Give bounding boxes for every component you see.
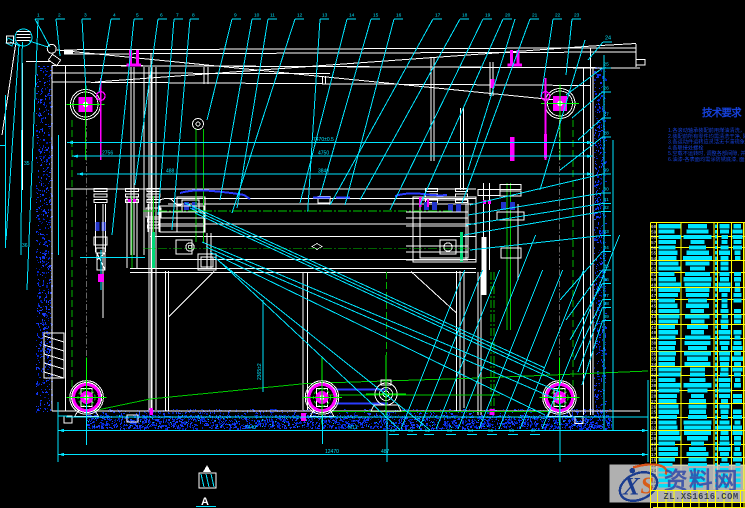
svg-text:50: 50: [651, 278, 657, 283]
svg-text:22: 22: [555, 13, 561, 19]
svg-text:31: 31: [651, 379, 657, 384]
svg-text:27: 27: [651, 400, 657, 405]
svg-text:9: 9: [234, 13, 237, 19]
svg-text:S: S: [641, 474, 654, 500]
svg-text:21: 21: [651, 432, 657, 437]
svg-text:58: 58: [651, 236, 657, 241]
svg-text:22: 22: [651, 427, 657, 432]
svg-text:49: 49: [651, 283, 657, 288]
svg-text:4750: 4750: [318, 151, 329, 157]
svg-text:54: 54: [651, 257, 657, 262]
svg-text:45: 45: [651, 305, 657, 310]
svg-text:5.空载不运转时, 调整各部间隙, 并涂防锈油漆上: 5.空载不运转时, 调整各部间隙, 并涂防锈油漆上: [668, 149, 745, 157]
svg-text:5: 5: [136, 13, 139, 19]
svg-text:7470±0.5: 7470±0.5: [313, 137, 334, 143]
svg-text:20: 20: [505, 13, 511, 19]
svg-text:24: 24: [651, 416, 657, 421]
svg-text:36: 36: [651, 352, 657, 357]
svg-text:51: 51: [651, 273, 657, 278]
svg-text:35: 35: [651, 358, 657, 363]
svg-text:4.各联接处螺栓: 4.各联接处螺栓: [668, 143, 704, 151]
svg-text:13: 13: [322, 13, 328, 19]
svg-text:487: 487: [381, 449, 390, 455]
svg-text:2.装配前所有零件均需清洗干净, 除锈: 2.装配前所有零件均需清洗干净, 除锈: [668, 132, 745, 140]
svg-text:1.各滚动轴承装配前用煤油清洗，用毛刷洗净 装轴承孔 同时涂: 1.各滚动轴承装配前用煤油清洗，用毛刷洗净 装轴承孔 同时涂上润: [668, 126, 745, 134]
svg-text:18: 18: [462, 13, 468, 19]
svg-text:2756: 2756: [102, 151, 113, 157]
svg-text:21: 21: [532, 13, 538, 19]
svg-text:46: 46: [651, 299, 657, 304]
svg-text:7: 7: [176, 13, 179, 19]
svg-text:X: X: [622, 474, 641, 501]
svg-text:16: 16: [651, 458, 657, 463]
svg-text:37: 37: [651, 347, 657, 352]
svg-text:技术要求: 技术要求: [702, 106, 742, 119]
svg-text:ZL.XS1616.COM: ZL.XS1616.COM: [664, 492, 739, 502]
svg-text:2365±2: 2365±2: [257, 363, 263, 380]
svg-text:4: 4: [113, 13, 116, 19]
svg-text:33: 33: [651, 368, 657, 373]
svg-text:56: 56: [651, 246, 657, 251]
svg-text:28: 28: [651, 395, 657, 400]
svg-text:42: 42: [651, 321, 657, 326]
svg-text:35: 35: [24, 161, 30, 167]
svg-text:16: 16: [396, 13, 402, 19]
svg-text:10: 10: [254, 13, 260, 19]
svg-text:1: 1: [37, 13, 40, 19]
svg-text:23: 23: [651, 421, 657, 426]
svg-text:47: 47: [651, 294, 657, 299]
svg-text:23: 23: [574, 13, 580, 19]
svg-text:3: 3: [84, 13, 87, 19]
svg-text:19: 19: [651, 442, 657, 447]
svg-text:40: 40: [651, 331, 657, 336]
svg-text:资料网: 资料网: [664, 468, 739, 494]
svg-text:8: 8: [192, 13, 195, 19]
svg-text:3.各运动件运转应灵活无卡滞现象: 3.各运动件运转应灵活无卡滞现象: [668, 138, 745, 146]
svg-text:6: 6: [160, 13, 163, 19]
svg-text:24: 24: [605, 36, 611, 42]
svg-text:18: 18: [651, 448, 657, 453]
svg-text:488: 488: [166, 169, 175, 175]
svg-text:57: 57: [651, 241, 657, 246]
svg-text:48: 48: [651, 289, 657, 294]
svg-text:44: 44: [651, 310, 657, 315]
svg-text:19: 19: [485, 13, 491, 19]
svg-text:43: 43: [651, 315, 657, 320]
svg-text:39: 39: [651, 336, 657, 341]
svg-text:26: 26: [651, 405, 657, 410]
svg-text:17: 17: [651, 453, 657, 458]
svg-text:6.油漆-各表面均需涂防锈底漆, 面漆,: 6.油漆-各表面均需涂防锈底漆, 面漆,: [668, 155, 745, 163]
svg-text:32: 32: [651, 374, 657, 379]
svg-text:30: 30: [651, 384, 657, 389]
svg-text:29: 29: [651, 389, 657, 394]
svg-text:53: 53: [651, 262, 657, 267]
svg-text:12: 12: [297, 13, 303, 19]
svg-text:12470: 12470: [325, 449, 339, 455]
svg-text:55: 55: [651, 252, 657, 257]
svg-text:11: 11: [270, 13, 275, 19]
svg-text:M12: M12: [348, 425, 358, 431]
svg-text:59: 59: [651, 230, 657, 235]
svg-text:60: 60: [651, 225, 657, 230]
svg-text:36: 36: [22, 243, 28, 249]
svg-text:41: 41: [651, 326, 657, 331]
svg-text:2: 2: [58, 13, 61, 19]
svg-text:38: 38: [651, 342, 657, 347]
svg-text:14: 14: [349, 13, 355, 19]
svg-text:25: 25: [651, 411, 657, 416]
svg-text:7440: 7440: [245, 425, 256, 431]
svg-text:20: 20: [651, 437, 657, 442]
svg-text:34: 34: [651, 363, 657, 368]
svg-text:3840: 3840: [318, 169, 329, 175]
svg-text:15: 15: [373, 13, 379, 19]
svg-text:17: 17: [435, 13, 441, 19]
svg-text:52: 52: [651, 268, 657, 273]
